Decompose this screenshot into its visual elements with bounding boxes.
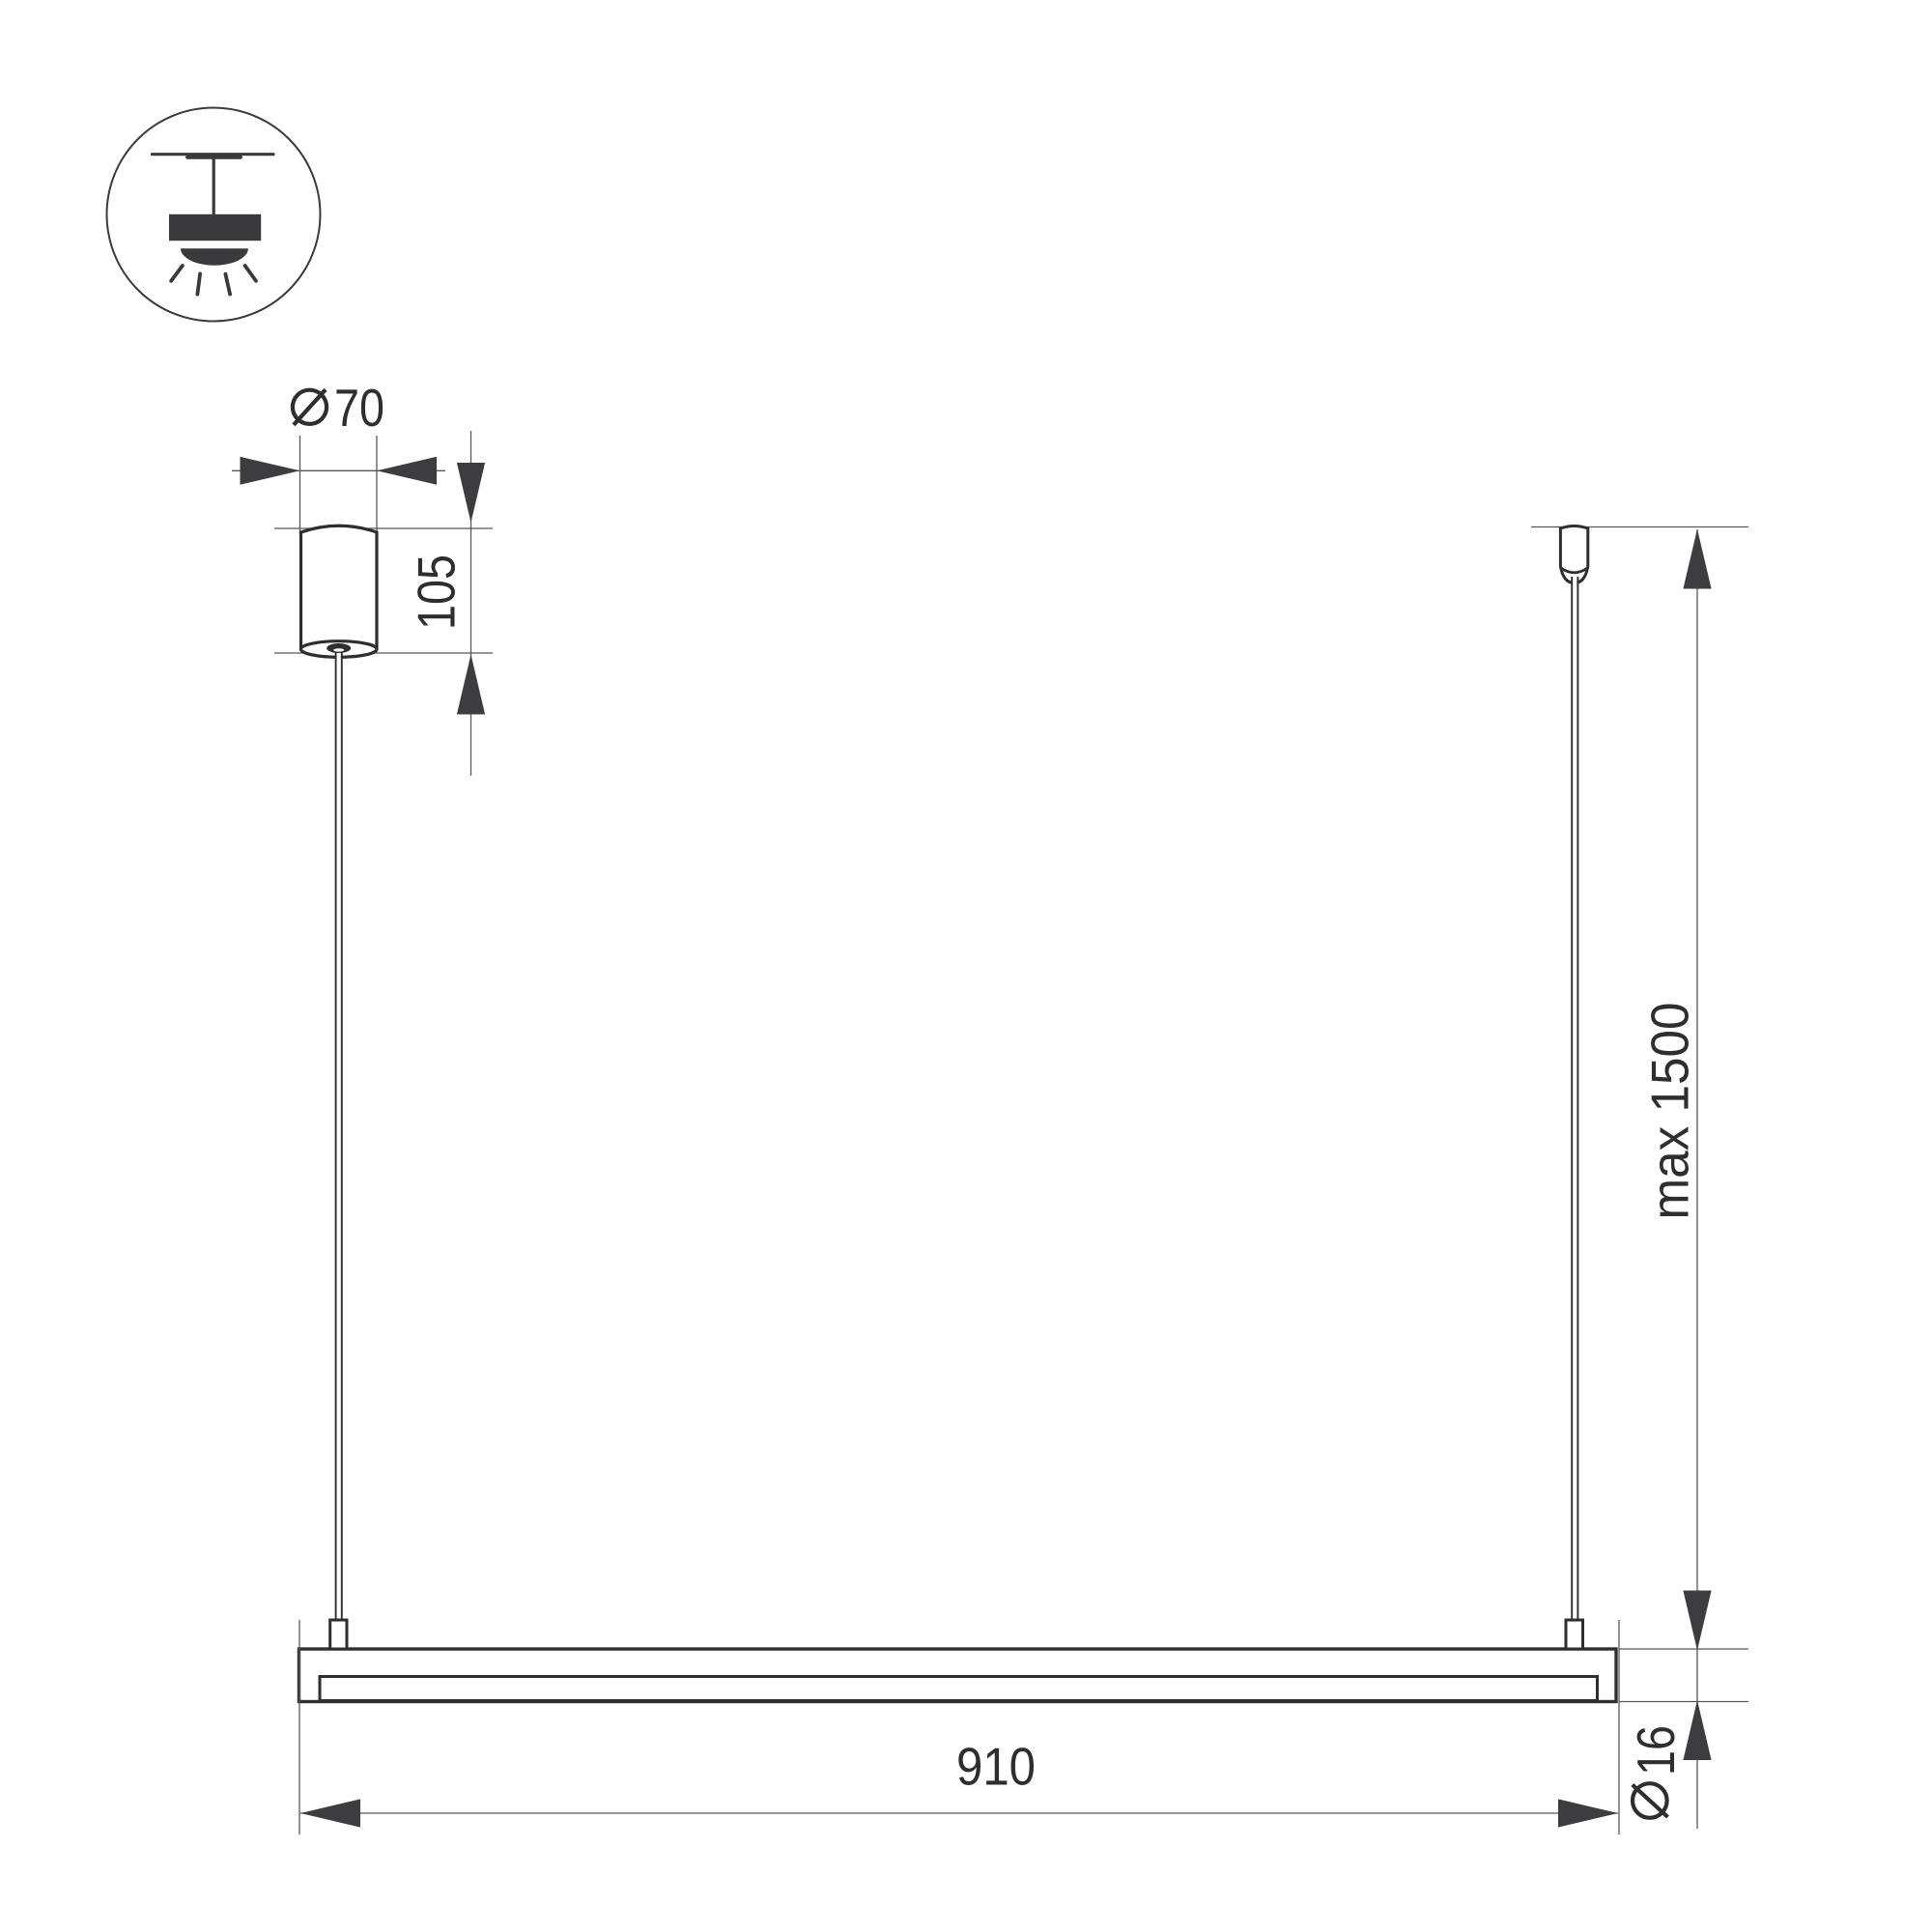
svg-text:910: 910 [956,1737,1036,1797]
svg-text:max 1500: max 1500 [1640,1003,1700,1220]
svg-text:16: 16 [1626,1725,1686,1776]
svg-text:105: 105 [407,554,467,630]
svg-text:70: 70 [334,378,384,438]
